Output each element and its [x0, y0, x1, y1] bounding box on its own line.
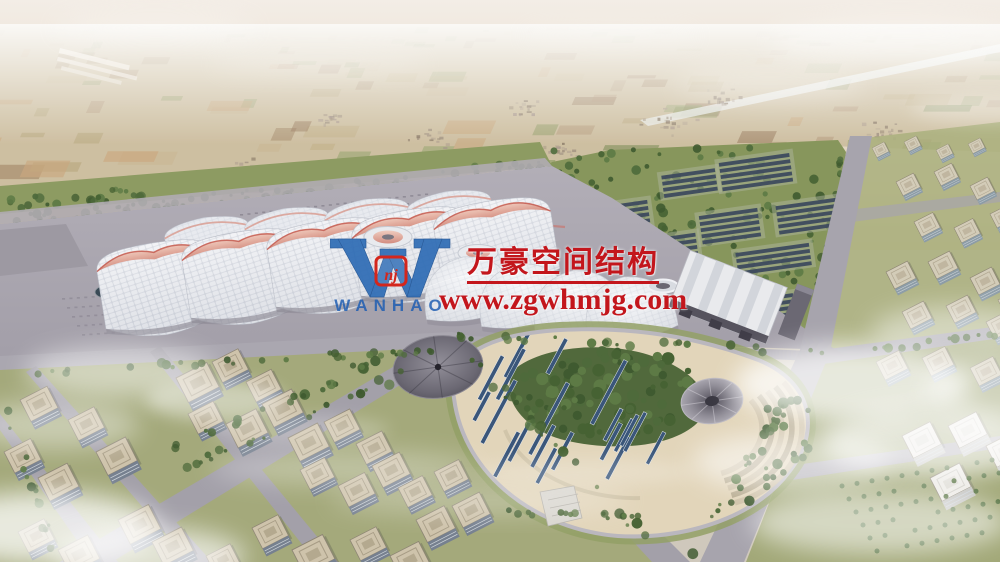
parking-stall	[321, 205, 324, 207]
parking-stall	[395, 197, 398, 199]
tree	[530, 418, 535, 423]
tree	[390, 349, 395, 354]
village-house	[245, 162, 249, 164]
tree	[290, 393, 297, 400]
tree	[982, 473, 987, 478]
tree	[350, 363, 356, 369]
tree	[952, 478, 957, 483]
parking-stall	[79, 316, 82, 318]
tree	[578, 367, 586, 375]
village-house	[567, 151, 572, 153]
tree	[468, 336, 473, 341]
scene-artwork	[0, 0, 1000, 562]
tree	[559, 425, 567, 433]
cloud	[210, 451, 480, 485]
parking-stall	[97, 333, 100, 335]
tree	[384, 380, 394, 390]
tree	[922, 484, 927, 489]
tree	[597, 429, 603, 435]
tree	[553, 335, 557, 339]
tree	[632, 363, 641, 372]
tree	[728, 499, 735, 506]
tree	[488, 383, 497, 392]
parking-stall	[84, 325, 87, 327]
parking-stall	[92, 296, 95, 298]
tree	[504, 336, 512, 344]
tree	[568, 512, 573, 517]
aerial-rendering: nj WANHAO 万豪空间结构 www.zgwhmjg.com	[0, 0, 1000, 562]
tree	[631, 147, 636, 152]
tree	[586, 400, 594, 408]
parking-stall	[97, 305, 100, 307]
tree	[631, 165, 641, 175]
tree	[885, 476, 890, 481]
cloud	[145, 380, 285, 420]
tree	[427, 348, 433, 354]
tree	[516, 336, 521, 341]
tree	[604, 157, 610, 163]
tree	[622, 513, 627, 518]
cloud	[675, 67, 865, 101]
tree	[607, 149, 616, 158]
tree	[627, 390, 639, 402]
tree	[231, 362, 235, 366]
parking-stall	[418, 194, 421, 196]
tree	[224, 449, 228, 453]
tree	[401, 352, 407, 358]
tree	[578, 423, 589, 434]
tree	[558, 446, 569, 457]
parking-stall	[94, 315, 97, 317]
village-house	[572, 150, 576, 153]
tree	[204, 429, 208, 433]
cloud	[692, 432, 892, 492]
tree	[524, 405, 531, 412]
parking-stall	[87, 315, 90, 317]
tree	[574, 169, 579, 174]
tree	[398, 368, 404, 374]
village-house	[235, 162, 238, 165]
tree	[697, 154, 703, 160]
tree	[546, 385, 559, 398]
parking-stall	[74, 307, 77, 309]
tree	[615, 343, 618, 346]
tree	[378, 352, 384, 358]
tree	[215, 446, 224, 455]
tree	[791, 278, 798, 285]
tree	[224, 356, 231, 363]
parking-stall	[82, 334, 85, 336]
tree	[359, 364, 365, 370]
village-house	[562, 147, 565, 150]
tree	[259, 357, 266, 364]
tree	[626, 523, 630, 527]
tree	[625, 341, 635, 351]
parking-stall	[329, 204, 332, 206]
tree	[645, 164, 650, 169]
parking-stall	[77, 325, 80, 327]
tree	[731, 243, 737, 249]
field-patch	[103, 151, 159, 162]
tree	[521, 337, 529, 345]
tree	[602, 339, 609, 346]
tree	[96, 195, 102, 201]
tree	[626, 405, 635, 414]
tree	[658, 152, 662, 156]
tree	[765, 215, 769, 219]
tree	[657, 400, 667, 410]
cloud	[210, 416, 390, 444]
parking-stall	[89, 306, 92, 308]
cloud	[210, 51, 430, 77]
tree	[601, 354, 610, 363]
tree	[632, 518, 643, 529]
tree	[657, 361, 665, 369]
tree	[779, 422, 788, 431]
tree	[589, 179, 596, 186]
tree	[20, 466, 27, 473]
village-house	[570, 154, 572, 156]
oval-pavilion	[648, 280, 678, 293]
tree	[653, 352, 662, 361]
tree	[660, 381, 668, 389]
tree	[457, 332, 460, 335]
tree	[326, 380, 331, 385]
tree	[507, 392, 517, 402]
tree	[301, 393, 307, 399]
tree	[131, 192, 137, 198]
tree	[611, 350, 621, 360]
tree	[598, 151, 604, 157]
tree	[641, 398, 647, 404]
tree	[576, 155, 582, 161]
tree	[470, 358, 475, 363]
tree	[659, 371, 667, 379]
tree	[687, 548, 698, 559]
tree	[809, 175, 818, 184]
tree	[7, 195, 16, 204]
parking-stall	[82, 306, 85, 308]
field-patch	[20, 161, 71, 178]
parking-stall	[62, 298, 65, 300]
hub-disc-pavilion	[364, 227, 412, 248]
tree	[374, 375, 384, 385]
tree	[562, 405, 567, 410]
field-patch	[256, 144, 282, 152]
tree	[974, 489, 979, 494]
tree	[744, 496, 754, 506]
tree	[587, 338, 596, 347]
tree	[837, 156, 843, 162]
tree	[606, 516, 610, 520]
cloud	[750, 490, 1000, 554]
parking-stall	[72, 316, 75, 318]
tree	[348, 394, 354, 400]
tree	[334, 353, 342, 361]
tree	[684, 341, 691, 348]
tree	[746, 145, 753, 152]
tree	[565, 162, 573, 170]
tree	[630, 514, 635, 519]
cloud	[520, 24, 700, 48]
tree	[635, 513, 642, 520]
parking-stall	[77, 297, 80, 299]
tree	[653, 417, 662, 426]
tree	[595, 485, 599, 489]
tree	[27, 482, 36, 491]
tree	[535, 399, 544, 408]
tree	[118, 188, 124, 194]
tree	[364, 388, 367, 391]
tree	[24, 454, 30, 460]
parking-stall	[403, 196, 406, 198]
tree	[656, 203, 665, 212]
parking-stall	[410, 195, 413, 197]
parking-stall	[425, 194, 428, 196]
tree	[758, 348, 766, 356]
tree	[320, 387, 325, 392]
parking-stall	[344, 203, 347, 205]
parking-stall	[247, 213, 250, 215]
tree	[693, 144, 702, 153]
tree	[172, 441, 180, 449]
tree	[753, 343, 760, 350]
cloud	[55, 14, 255, 42]
tree	[536, 373, 548, 385]
tree	[967, 476, 972, 481]
village-house	[239, 163, 243, 166]
tree	[715, 508, 720, 513]
tree	[356, 389, 365, 398]
tree	[572, 397, 578, 403]
tree	[718, 503, 721, 506]
tree	[366, 351, 373, 358]
tree	[836, 163, 841, 168]
tree	[570, 374, 583, 387]
parking-stall	[84, 297, 87, 299]
tree	[504, 396, 507, 399]
tree	[24, 201, 32, 209]
tree	[764, 202, 772, 210]
village-house	[555, 145, 559, 148]
tree	[323, 402, 329, 408]
tree	[45, 203, 49, 207]
tree	[124, 189, 129, 194]
village-house	[564, 148, 567, 151]
tree	[774, 418, 780, 424]
tree	[554, 443, 558, 447]
tree	[531, 406, 538, 413]
tree	[549, 375, 560, 386]
parking-stall	[92, 324, 95, 326]
tree	[763, 191, 768, 196]
tree	[413, 351, 418, 356]
parking-stall	[89, 334, 92, 336]
tree	[675, 339, 682, 346]
parking-stall	[240, 214, 243, 216]
tree	[109, 187, 115, 193]
village-house	[443, 147, 447, 149]
tree	[502, 384, 510, 392]
tree	[284, 357, 289, 362]
tree	[183, 463, 192, 472]
tree	[192, 460, 201, 469]
tree	[565, 358, 570, 363]
tree	[592, 364, 605, 377]
tree	[591, 387, 603, 399]
tree	[25, 475, 30, 480]
village-house	[251, 158, 255, 161]
tree	[717, 150, 721, 154]
parking-stall	[255, 212, 258, 214]
parking-stall	[99, 324, 102, 326]
tree	[643, 424, 653, 434]
tree	[573, 411, 582, 420]
tree	[608, 177, 613, 182]
tree	[685, 368, 691, 374]
parking-stall	[69, 298, 72, 300]
tree	[650, 384, 655, 389]
tree	[726, 340, 735, 349]
tree	[659, 338, 668, 347]
tree	[313, 410, 316, 413]
tree	[710, 515, 714, 519]
tree	[661, 225, 668, 232]
tree	[664, 414, 676, 426]
tree	[534, 423, 545, 434]
tree	[540, 434, 543, 437]
tree	[687, 220, 696, 229]
parking-stall	[336, 203, 339, 205]
tree	[551, 147, 558, 154]
tree	[71, 194, 79, 202]
parking-stall	[314, 206, 317, 208]
tree	[209, 457, 214, 462]
tree	[558, 361, 566, 369]
tree	[526, 394, 533, 401]
tree	[641, 531, 649, 539]
parking-stall	[67, 307, 70, 309]
tree	[609, 392, 621, 404]
field-patch	[310, 144, 336, 150]
tree	[582, 358, 592, 368]
parking-stall	[262, 212, 265, 214]
tree	[520, 372, 529, 381]
cloud	[475, 459, 695, 485]
village-house	[543, 146, 546, 149]
cloud	[330, 485, 630, 515]
tree	[478, 362, 483, 367]
tree	[32, 194, 38, 200]
